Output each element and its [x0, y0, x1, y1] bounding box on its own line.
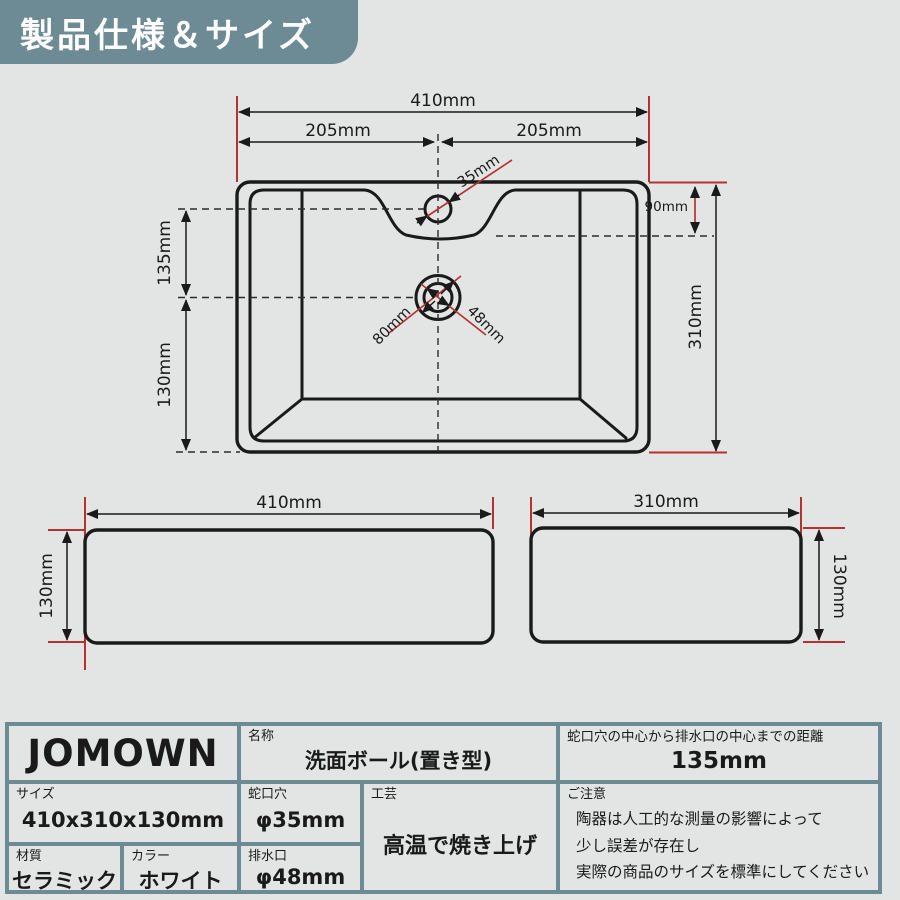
dim-drain-hole: 48mm	[464, 303, 508, 347]
side-view-body	[531, 528, 801, 642]
distance-value: 135mm	[560, 746, 878, 780]
notice-line-1: 陶器は人工的な測量の影響によって	[576, 806, 874, 833]
faucet-hole-label: 蛇口穴	[241, 784, 360, 803]
product-name-cell: 名称 洗面ボール(置き型)	[241, 726, 556, 780]
notice-text: 陶器は人工的な測量の影響によって 少し誤差が存在し 実際の商品のサイズを標準にし…	[560, 803, 878, 890]
spec-sheet-page: 製品仕様＆サイズ	[0, 0, 900, 900]
distance-label: 蛇口穴の中心から排水口の中心までの距離	[560, 726, 878, 746]
size-cell: サイズ 410x310x130mm	[9, 784, 237, 842]
color-value: ホワイト	[124, 865, 237, 890]
faucet-hole-cell: 蛇口穴 φ35mm	[241, 784, 360, 842]
dim-width-right: 205mm	[516, 121, 582, 141]
faucet-callout	[417, 160, 512, 223]
front-view-body	[85, 530, 493, 643]
product-name-value: 洗面ボール(置き型)	[241, 745, 556, 780]
dim-drain-to-front: 130mm	[155, 342, 175, 408]
material-value: セラミック	[9, 865, 120, 890]
dim-faucet-to-drain: 135mm	[155, 220, 175, 286]
size-value: 410x310x130mm	[9, 803, 237, 842]
brand-name: JOMOWN	[27, 732, 218, 775]
notice-line-2: 少し誤差が存在し	[576, 833, 874, 860]
dim-drain-flange: 80mm	[370, 304, 414, 348]
material-label: 材質	[9, 846, 120, 865]
drain-outlet-value: φ48mm	[241, 865, 360, 890]
dim-top-to-recess: 90mm	[645, 199, 688, 215]
side-view-extension-lines	[531, 497, 845, 642]
front-dim-width: 410mm	[256, 493, 322, 513]
side-dim-height: 130mm	[829, 553, 849, 619]
craft-cell: 工芸 高温で焼き上げ	[364, 784, 556, 890]
material-cell: 材質 セラミック	[9, 846, 120, 890]
dim-depth-total: 310mm	[686, 284, 706, 350]
side-dim-depth: 310mm	[633, 492, 699, 512]
side-view: 310mm 130mm	[531, 492, 849, 642]
drain-outlet-cell: 排水口 φ48mm	[241, 846, 360, 890]
distance-cell: 蛇口穴の中心から排水口の中心までの距離 135mm	[560, 726, 878, 780]
drain-outlet-label: 排水口	[241, 846, 360, 865]
color-label: カラー	[124, 846, 237, 865]
top-view: 410mm 205mm 205mm 35mm 90mm 310mm 135mm …	[155, 91, 727, 453]
notice-cell: ご注意 陶器は人工的な測量の影響によって 少し誤差が存在し 実際の商品のサイズを…	[560, 784, 878, 890]
notice-line-3: 実際の商品のサイズを標準にしてください	[576, 859, 874, 886]
dim-width-total: 410mm	[410, 91, 476, 111]
front-dim-height: 130mm	[37, 553, 57, 619]
size-label: サイズ	[9, 784, 237, 803]
spec-table: JOMOWN 名称 洗面ボール(置き型) 蛇口穴の中心から排水口の中心までの距離…	[5, 722, 882, 894]
notice-label: ご注意	[560, 784, 878, 803]
brand-cell: JOMOWN	[9, 726, 237, 780]
product-name-label: 名称	[241, 726, 556, 745]
dim-width-left: 205mm	[305, 121, 371, 141]
craft-label: 工芸	[364, 784, 556, 803]
faucet-hole-value: φ35mm	[241, 803, 360, 842]
front-view: 410mm 130mm	[37, 493, 493, 670]
basin-bottom-lines	[254, 191, 626, 438]
color-cell: カラー ホワイト	[124, 846, 237, 890]
craft-value: 高温で焼き上げ	[364, 803, 556, 890]
